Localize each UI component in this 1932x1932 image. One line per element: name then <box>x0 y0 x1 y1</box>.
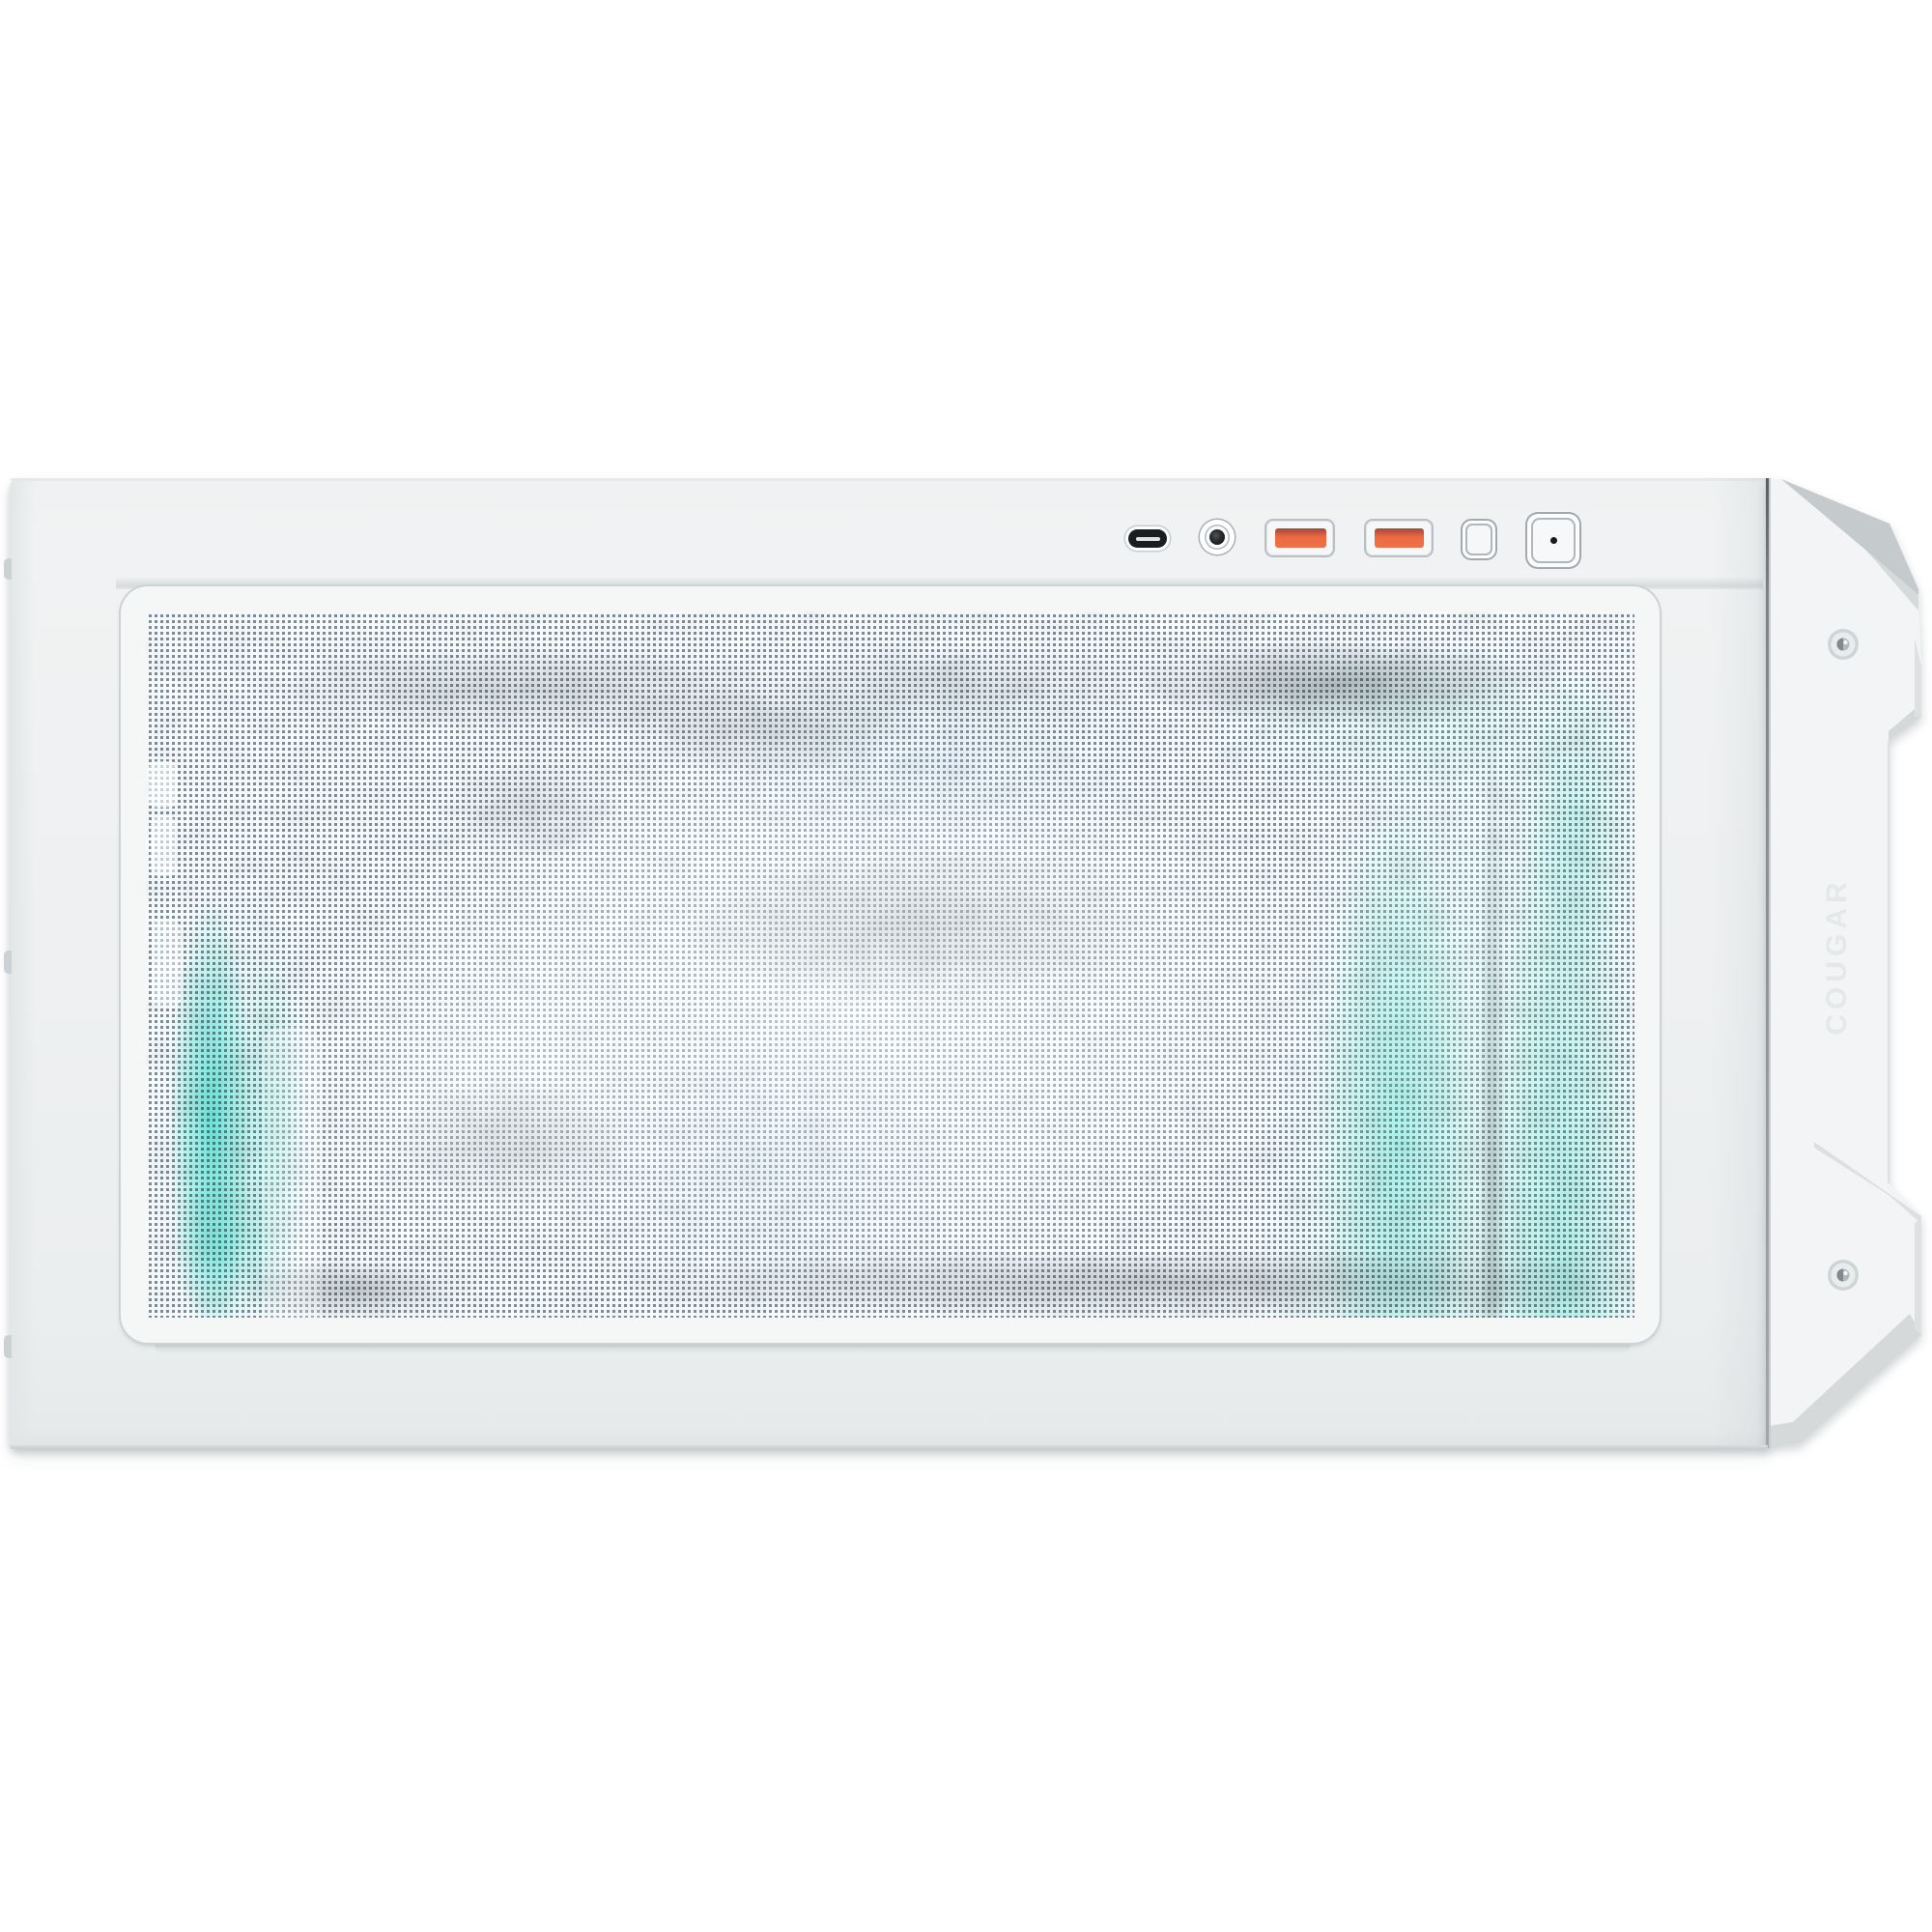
svg-text:COUGAR: COUGAR <box>1821 877 1853 1035</box>
